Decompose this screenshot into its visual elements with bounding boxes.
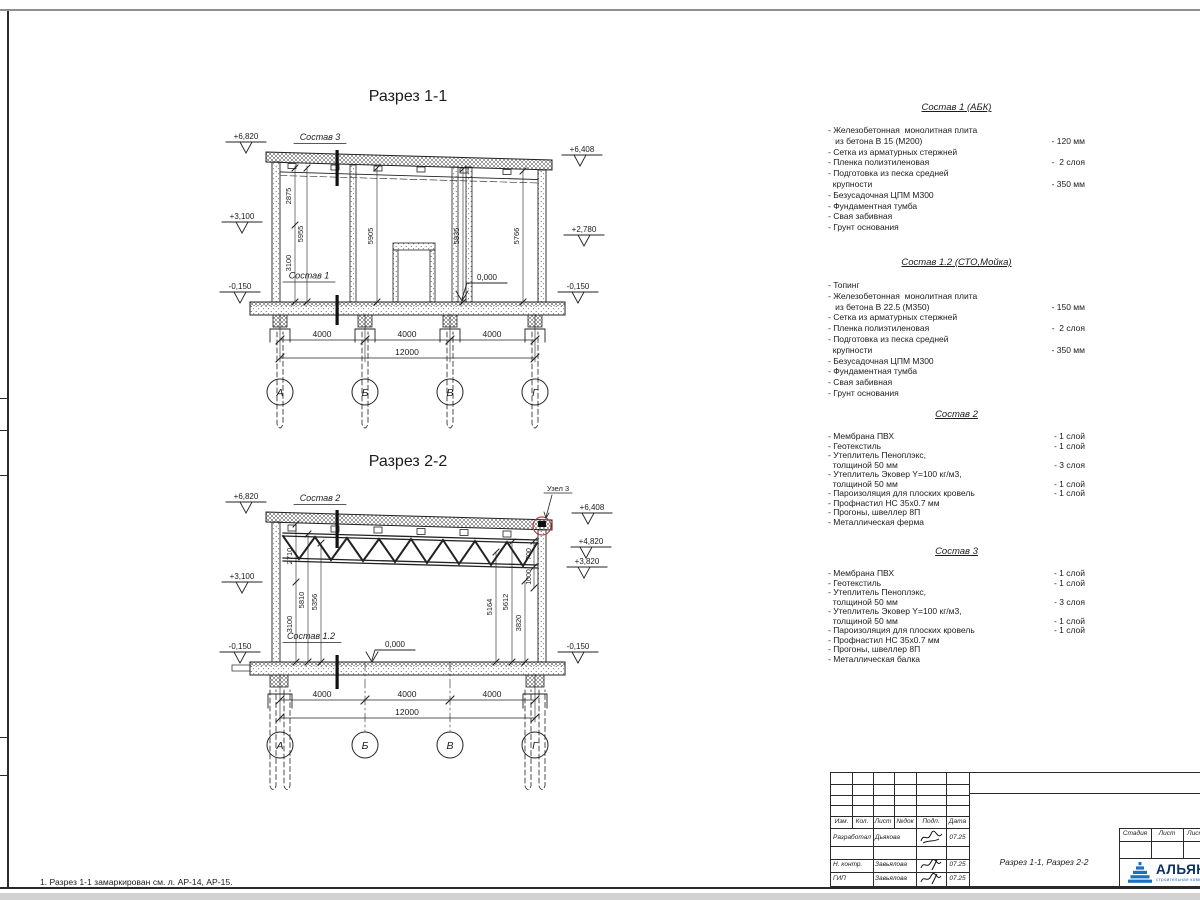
interior-wall [466,167,472,302]
section-cut-mark [336,510,339,548]
tb-role: Разработал [833,834,873,841]
list-item: - Металлическая балка [828,655,1085,665]
list-item: - Свая забивная [828,377,1085,388]
floor-slab [232,662,565,675]
dimensions-vertical [292,165,526,305]
list-item: из бетона В 22.5 (М350)- 150 мм [828,302,1085,313]
list-title: Состав 1.2 (СТО,Мойка) [828,257,1085,268]
logo-subtext: строительная компания [1156,878,1200,883]
list-item-text: - Металлическая ферма [828,518,924,528]
note-line: 1. Разрез 1-1 замаркирован см. л. АР-14,… [40,876,233,889]
tb-col-ndok: №док [894,818,916,825]
section-2-2-title: Разрез 2-2 [369,453,448,470]
tb-col-podp: Подп. [916,818,946,825]
logo-triangle-icon [1128,861,1152,884]
left-wall [272,522,280,662]
list-item-value: - 2 слоя [1052,323,1085,334]
composition-list-1-2: Состав 1.2 (СТО,Мойка) - Топинг- Железоб… [828,257,1085,399]
sheet-notes: 1. Разрез 1-1 замаркирован см. л. АР-14,… [40,850,233,900]
elevation-label: +6,408 [580,503,605,512]
list-item: - Фундаментная тумба [828,366,1085,377]
dim-label: 3100 [284,255,293,272]
list-item-value: - 150 мм [1052,302,1085,313]
right-wall [538,530,546,662]
list-item: - Безусадочная ЦПМ М300 [828,190,1085,201]
dim-label: 5356 [310,594,319,611]
list-item-value: - 3 слоя [1054,598,1085,608]
list-item-value: - 2 слоя [1052,157,1085,168]
elevation-label: -0,150 [567,642,590,651]
marker-label: Состав 3 [300,132,341,142]
tb-role: ГИП [833,875,873,882]
composition-list-3: Состав 3 - Мембрана ПВХ- 1 слой- Геотекс… [828,546,1085,664]
list-item-text: - Сетка из арматурных стержней [828,147,957,158]
node-label: Узел 3 [547,484,569,493]
list-item: - Пленка полиэтиленовая- 2 слоя [828,157,1085,168]
dim-label: 5612 [501,594,510,611]
list-item-value: - 120 мм [1052,136,1085,147]
logo-text: АЛЬЯНС [1156,863,1200,877]
list-item-text: - Сетка из арматурных стержней [828,312,957,323]
list-item-text: из бетона В 15 (М200) [828,136,922,147]
list-item-text: - Свая забивная [828,211,892,222]
list-item: - Свая забивная [828,211,1085,222]
door-opening [393,243,435,302]
elevation-label: +6,820 [234,492,259,501]
list-item-value: - 3 слоя [1054,461,1085,471]
section-cut-mark [336,655,339,689]
dim-label: 4000 [398,689,417,699]
elevation-label: +6,820 [234,132,259,141]
list-rows: - Мембрана ПВХ- 1 слой- Геотекстиль- 1 с… [828,432,1085,527]
list-item-text: - Подготовка из песка средней [828,334,949,345]
signature-scribble [918,830,944,845]
elevation-label: +6,408 [570,145,595,154]
tb-name: Дьякова [875,834,915,841]
list-item-text: - Топинг [828,280,860,291]
dim-label: 2875 [284,188,293,205]
tb-col-list: Лист [872,818,894,825]
elevation-label: +4,820 [579,537,604,546]
marker-label: Состав 2 [300,493,341,503]
dim-label: 5766 [512,228,521,245]
elevation-label: -0,150 [229,642,252,651]
list-item: - Железобетонная монолитная плита [828,291,1085,302]
axis-letter: А [275,740,283,752]
list-item: - Сетка из арматурных стержней [828,147,1085,158]
elevation-label: +3,100 [230,572,255,581]
list-item: - Подготовка из песка средней [828,334,1085,345]
list-item-text: - Безусадочная ЦПМ М300 [828,356,934,367]
list-item: - Сетка из арматурных стержней [828,312,1085,323]
dim-label: 5810 [297,592,306,609]
list-item-text: - Пленка полиэтиленовая [828,323,929,334]
list-item: - Металлическая ферма [828,518,1085,528]
dim-label: 2710 [285,548,294,565]
axis-letter: В [446,740,453,752]
elevation-label: 0,000 [477,273,498,282]
tb-stage: Стадия [1119,830,1151,837]
list-item-text: - Безусадочная ЦПМ М300 [828,190,934,201]
tb-col-data: Дата [946,818,969,825]
dim-label: 4000 [313,689,332,699]
list-item: - Железобетонная монолитная плита [828,125,1085,136]
list-title: Состав 1 (АБК) [828,102,1085,113]
list-item: - Грунт основания [828,388,1085,399]
title-block: Изм. Кол. Лист №док Подп. Дата Разработа… [830,772,1200,887]
driven-piles [270,690,545,790]
list-item-value: - 1 слой [1054,489,1085,499]
signature-scribble [918,873,944,886]
tb-name: Завьялова [875,875,915,882]
list-title: Состав 2 [828,409,1085,420]
list-item: - Безусадочная ЦПМ М300 [828,356,1085,367]
list-item-text: - Фундаментная тумба [828,201,917,212]
list-item: крупности- 350 мм [828,345,1085,356]
list-item: - Пленка полиэтиленовая- 2 слоя [828,323,1085,334]
list-item-text: - Фундаментная тумба [828,366,917,377]
list-title: Состав 3 [828,546,1085,557]
dim-label: 4000 [313,329,332,339]
list-item-text: - Грунт основания [828,388,899,399]
grid-axes: А Б В Г [267,732,548,758]
drawing-sheet: Разрез 1-1 [0,0,1200,900]
list-item: - Топинг [828,280,1085,291]
interior-wall [350,165,356,302]
list-item-value: - 350 мм [1052,179,1085,190]
axis-letter: А [275,387,283,399]
dim-label: 700 [526,548,533,560]
elevation-label: -0,150 [567,282,590,291]
axis-letter: Б [362,387,369,399]
left-wall [272,162,280,302]
dim-label: 5905 [366,228,375,245]
elevation-label: -0,150 [229,282,252,291]
list-item-text: крупности [828,179,872,190]
list-rows: - Железобетонная монолитная плита из бет… [828,125,1085,233]
list-item: из бетона В 15 (М200)- 120 мм [828,136,1085,147]
composition-list-1: Состав 1 (АБК) - Железобетонная монолитн… [828,102,1085,233]
dim-label: 12000 [395,707,419,717]
grid-axes: А Б В Г [267,379,548,405]
elevation-label: +2,780 [572,225,597,234]
marker-label: Состав 1 [289,271,330,281]
list-item-text: - Пленка полиэтиленовая [828,157,929,168]
dim-label: 4000 [483,329,502,339]
dim-label: 12000 [395,347,419,357]
floor-slab [250,302,565,315]
list-item-text: - Грунт основания [828,222,899,233]
list-item-text: из бетона В 22.5 (М350) [828,302,929,313]
axis-letter: Б [362,740,369,752]
company-logo: АЛЬЯНС строительная компания [1128,861,1200,884]
list-item-text: - Железобетонная монолитная плита [828,291,977,302]
list-rows: - Топинг- Железобетонная монолитная плит… [828,280,1085,399]
composition-list-2: Состав 2 - Мембрана ПВХ- 1 слой- Геотекс… [828,409,1085,527]
elevation-label: +3,820 [575,557,600,566]
tb-sheets: Листов [1183,830,1200,837]
tb-date: 07.25 [947,834,968,841]
list-item-value: - 1 слой [1054,626,1085,636]
list-item: - Фундаментная тумба [828,201,1085,212]
section-2-2-drawing: Разрез 2-2 [220,453,612,790]
right-wall [538,170,546,302]
roof-slab [266,152,552,170]
list-item-text: - Свая забивная [828,377,892,388]
list-item-text: - Железобетонная монолитная плита [828,125,977,136]
dim-label: 3100 [285,616,294,633]
list-item-value: - 1 слой [1054,579,1085,589]
section-1-1-drawing: Разрез 1-1 [220,88,604,428]
dim-label: 5164 [485,599,494,616]
signature-scribble [918,859,944,872]
elevation-label: 0,000 [385,640,406,649]
dim-label: 5955 [296,226,305,243]
dim-label: 4000 [398,329,417,339]
roof-slab [266,512,552,530]
dim-label: 5835 [452,228,461,245]
tb-date: 07.25 [947,875,968,882]
list-item: - Грунт основания [828,222,1085,233]
elevation-label: +3,100 [230,212,255,221]
tb-name: Завьялова [875,861,915,868]
dim-label: 4000 [483,689,502,699]
list-item-value: - 350 мм [1052,345,1085,356]
tb-col-kol: Кол. [852,818,872,825]
axis-letter: Г [532,740,539,752]
section-1-1-title: Разрез 1-1 [369,88,448,105]
list-item: крупности- 350 мм [828,179,1085,190]
list-item: - Подготовка из песка средней [828,168,1085,179]
tb-role: Н. контр. [833,861,873,868]
dim-label: 3820 [514,615,523,632]
axis-letter: В [446,387,453,399]
section-cut-mark [336,150,339,186]
tb-col-izm: Изм. [831,818,852,825]
dim-label: 1000 [526,569,533,585]
list-rows: - Мембрана ПВХ- 1 слой- Геотекстиль- 1 с… [828,569,1085,664]
list-item-text: - Металлическая балка [828,655,920,665]
section-cut-mark [336,295,339,325]
tb-date: 07.25 [947,861,968,868]
document-title: Разрез 1-1, Разрез 2-2 [969,857,1119,867]
tb-sheet: Лист [1151,830,1183,837]
list-item-text: крупности [828,345,872,356]
list-item-text: - Подготовка из песка средней [828,168,949,179]
marker-label: Состав 1.2 [287,631,335,641]
list-item-value: - 1 слой [1054,442,1085,452]
